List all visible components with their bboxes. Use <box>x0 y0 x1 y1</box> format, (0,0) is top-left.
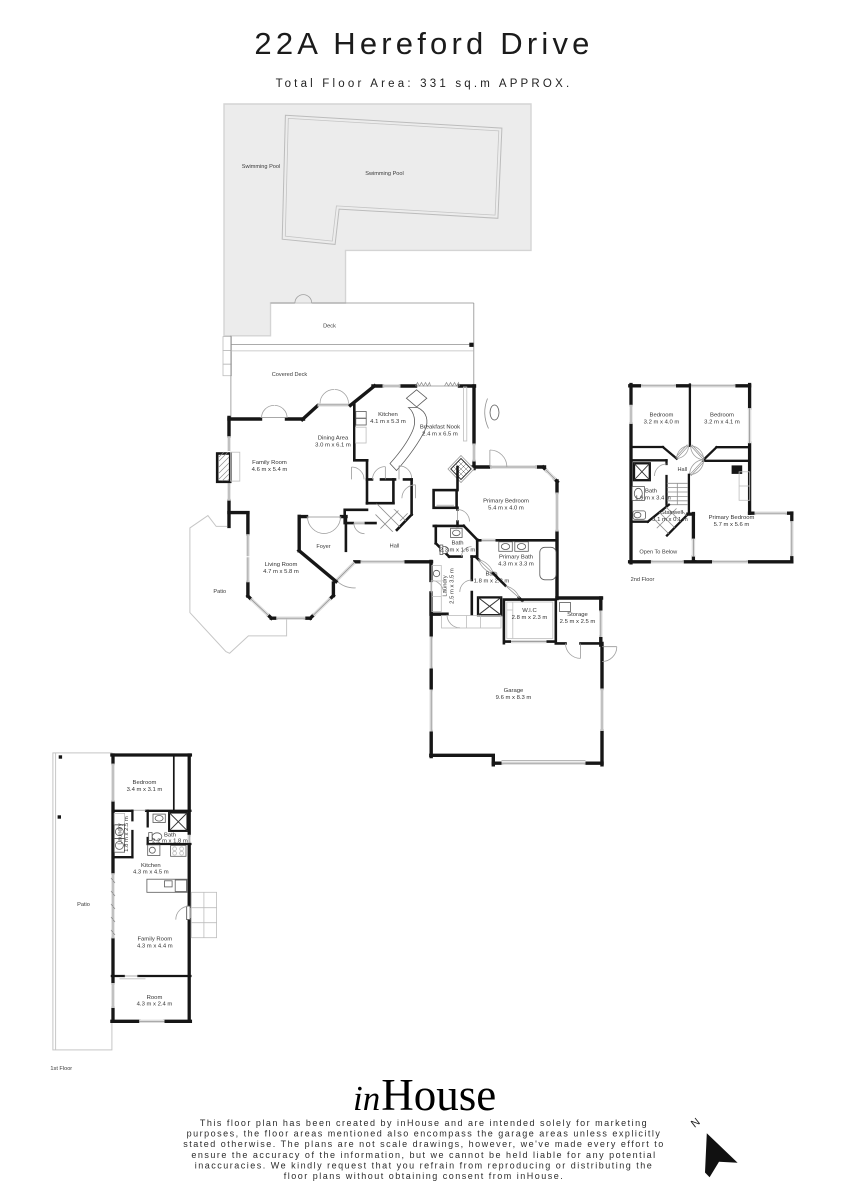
svg-text:Stairwell: Stairwell <box>661 510 683 516</box>
svg-text:2.2 m x 1.8 m: 2.2 m x 1.8 m <box>152 839 188 845</box>
svg-text:3.1 m x 0.1 m: 3.1 m x 0.1 m <box>652 517 688 523</box>
svg-text:purposes, the floor areas ment: purposes, the floor areas mentioned also… <box>187 1129 662 1139</box>
svg-text:4.3 m x 2.4 m: 4.3 m x 2.4 m <box>137 1001 173 1007</box>
svg-text:Patio: Patio <box>77 902 90 908</box>
svg-text:Kitchen: Kitchen <box>378 412 398 418</box>
svg-text:1.8 m x 2.5 m: 1.8 m x 2.5 m <box>124 816 130 852</box>
svg-text:inaccuracies. We kindly reques: inaccuracies. We kindly request that you… <box>195 1160 654 1170</box>
svg-text:2.4 m x 6.5 m: 2.4 m x 6.5 m <box>422 432 458 438</box>
svg-text:4.3 m x 4.4 m: 4.3 m x 4.4 m <box>137 944 173 950</box>
svg-text:Primary Bedroom: Primary Bedroom <box>483 499 529 505</box>
svg-text:5.4 m x 4.0 m: 5.4 m x 4.0 m <box>488 506 524 512</box>
svg-text:Swimming Pool: Swimming Pool <box>242 164 281 170</box>
svg-text:22A Hereford Drive: 22A Hereford Drive <box>254 26 593 61</box>
svg-text:Laundry: Laundry <box>118 823 124 844</box>
svg-text:4.6 m x 5.4 m: 4.6 m x 5.4 m <box>252 467 288 473</box>
svg-text:Swimming Pool: Swimming Pool <box>365 171 404 177</box>
svg-text:3.4 m x 3.1 m: 3.4 m x 3.1 m <box>127 787 163 793</box>
svg-text:Bath: Bath <box>164 833 176 839</box>
svg-text:Total Floor Area: 331 sq.m APP: Total Floor Area: 331 sq.m APPROX. <box>276 78 573 90</box>
svg-text:4.7 m x 5.8 m: 4.7 m x 5.8 m <box>263 569 299 575</box>
svg-text:W.I.C: W.I.C <box>522 608 537 614</box>
svg-text:Bedroom: Bedroom <box>133 780 157 786</box>
svg-text:Family Room: Family Room <box>137 937 172 943</box>
svg-text:Living Room: Living Room <box>265 562 298 568</box>
svg-text:Laundry: Laundry <box>443 575 449 596</box>
svg-text:Deck: Deck <box>323 324 336 330</box>
svg-text:Covered Deck: Covered Deck <box>272 372 308 378</box>
svg-text:Bedroom: Bedroom <box>710 413 734 419</box>
svg-text:Kitchen: Kitchen <box>141 863 161 869</box>
svg-text:4.3 m x 4.5 m: 4.3 m x 4.5 m <box>133 869 169 875</box>
svg-text:1.9 m x 3.4 m: 1.9 m x 3.4 m <box>635 496 671 502</box>
svg-text:ensure the accuracy of the inf: ensure the accuracy of the information, … <box>191 1150 656 1160</box>
svg-text:Storage: Storage <box>567 612 588 618</box>
svg-text:Room: Room <box>147 995 163 1001</box>
svg-text:Bedroom: Bedroom <box>650 413 674 419</box>
svg-text:3.0 m x 6.1 m: 3.0 m x 6.1 m <box>315 443 351 449</box>
svg-text:Bath: Bath <box>451 540 463 546</box>
svg-text:Foyer: Foyer <box>316 544 330 550</box>
svg-text:Garage: Garage <box>504 688 524 694</box>
svg-text:Breakfast Nook: Breakfast Nook <box>420 425 460 431</box>
svg-text:Family Room: Family Room <box>252 460 287 466</box>
svg-text:This floor plan has been creat: This floor plan has been created by inHo… <box>200 1118 648 1128</box>
svg-text:stated otherwise. The plans ar: stated otherwise. The plans are not scal… <box>183 1139 665 1149</box>
svg-text:2.8 m x 2.3 m: 2.8 m x 2.3 m <box>512 615 548 621</box>
svg-text:Bath: Bath <box>645 489 657 495</box>
svg-text:4.1 m x 5.3 m: 4.1 m x 5.3 m <box>370 419 406 425</box>
svg-text:3.2 m x 4.1 m: 3.2 m x 4.1 m <box>704 420 740 426</box>
svg-text:Patio: Patio <box>213 589 226 595</box>
svg-text:5.7 m x 5.6 m: 5.7 m x 5.6 m <box>714 522 750 528</box>
svg-text:4.3 m x 3.3 m: 4.3 m x 3.3 m <box>498 562 534 568</box>
svg-text:Primary Bath: Primary Bath <box>499 555 533 561</box>
svg-text:2.3 m x 1.6 m: 2.3 m x 1.6 m <box>440 547 476 553</box>
svg-text:Hall: Hall <box>390 544 400 550</box>
svg-text:Primary Bedroom: Primary Bedroom <box>709 515 755 521</box>
svg-text:2nd Floor: 2nd Floor <box>631 577 655 583</box>
svg-text:2.5 m x 2.5 m: 2.5 m x 2.5 m <box>560 619 596 625</box>
svg-text:floor plans without obtaining: floor plans without obtaining consent fr… <box>284 1171 565 1181</box>
svg-text:Open To Below: Open To Below <box>639 550 678 556</box>
svg-text:3.2 m x 4.0 m: 3.2 m x 4.0 m <box>644 420 680 426</box>
svg-text:2.5 m x 3.5 m: 2.5 m x 3.5 m <box>450 568 456 604</box>
svg-text:Dining Area: Dining Area <box>318 436 349 442</box>
svg-text:Hall: Hall <box>677 467 687 473</box>
svg-text:9.6 m x 8.3 m: 9.6 m x 8.3 m <box>496 695 532 701</box>
svg-text:1st Floor: 1st Floor <box>50 1066 72 1072</box>
